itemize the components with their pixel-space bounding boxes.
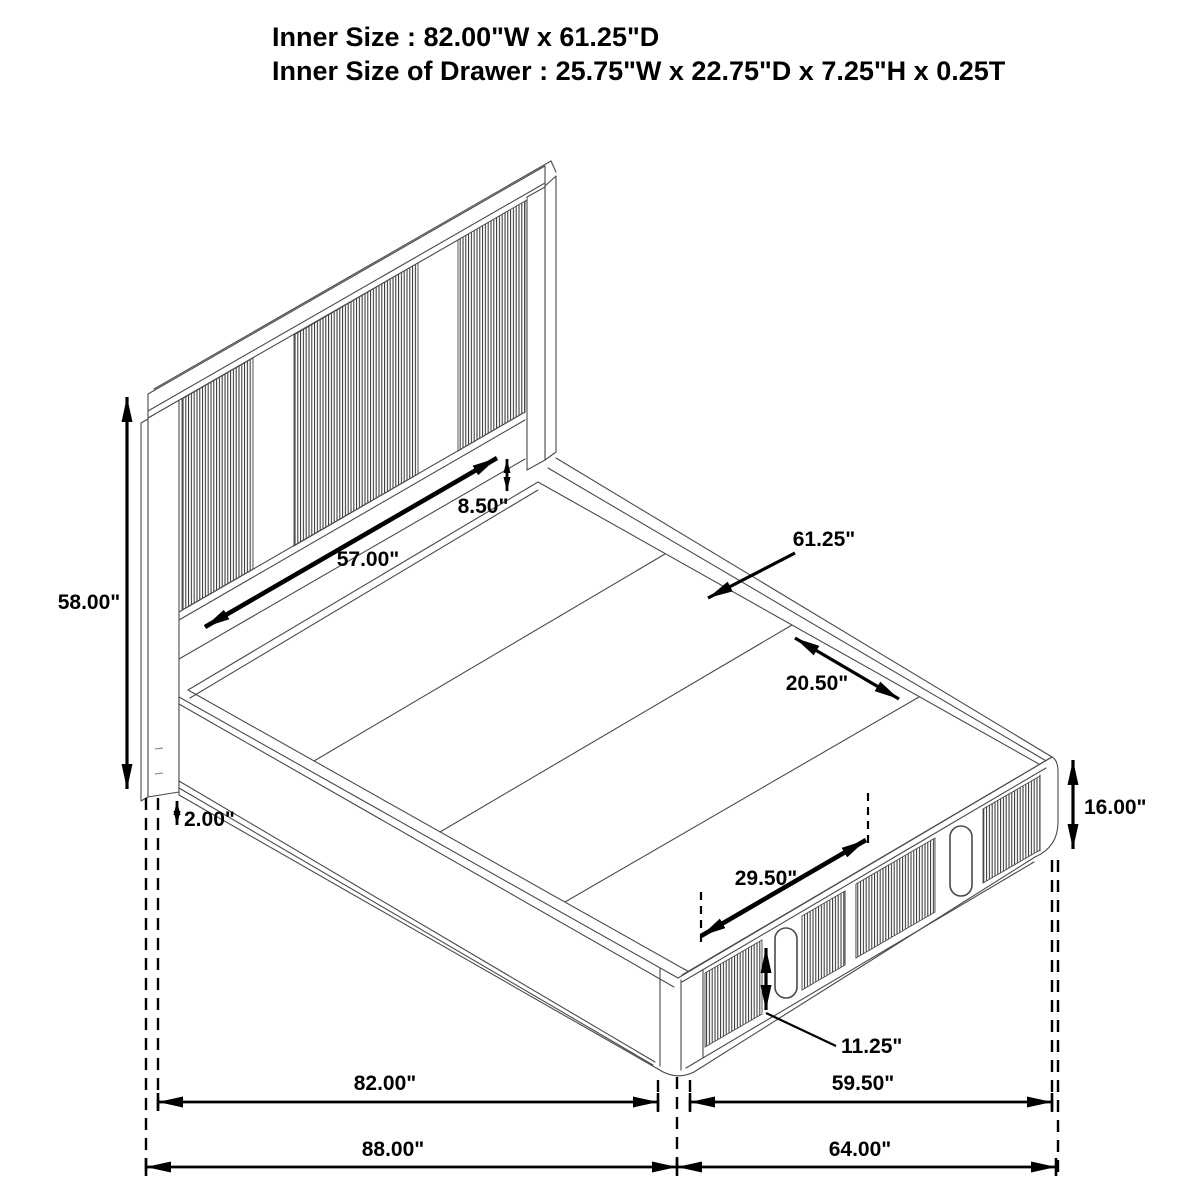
dim-overall-length: 88.00" <box>146 1138 677 1176</box>
headboard-reeded-panel-1 <box>182 358 253 610</box>
headboard-left-post-side <box>141 419 148 801</box>
dim-headboard-height-label: 58.00" <box>58 591 121 614</box>
dim-inner-length-label: 82.00" <box>354 1072 417 1095</box>
dim-drawer-rail-length-label: 59.50" <box>832 1072 895 1095</box>
headboard-left-post <box>148 400 179 797</box>
headboard-right-post <box>527 187 545 470</box>
title-line-2: Inner Size of Drawer : 25.75"W x 22.75"D… <box>272 56 1006 86</box>
headboard-right-post-side <box>545 176 556 460</box>
drawer-handle-1 <box>775 928 797 998</box>
headboard-reeded-panel-3 <box>458 201 525 451</box>
dim-overall-length-label: 88.00" <box>362 1138 425 1161</box>
dim-headboard-width-label: 57.00" <box>337 548 400 571</box>
dim-inner-length: 82.00" <box>158 1072 658 1111</box>
dim-inner-depth-label: 61.25" <box>793 528 856 551</box>
dim-drawer-width-label: 29.50" <box>735 867 798 890</box>
dim-headboard-height: 58.00" <box>58 397 127 789</box>
title-block: Inner Size : 82.00"W x 61.25"D Inner Siz… <box>272 22 1006 86</box>
bed-dimension-diagram: 58.00" 2.00" 8.50" 57.00" 61.25" 20.50" … <box>0 0 1200 1200</box>
diagram-page: 58.00" 2.00" 8.50" 57.00" 61.25" 20.50" … <box>0 0 1200 1200</box>
drawer-handle-2 <box>950 826 972 896</box>
dim-platform-height-label: 16.00" <box>1084 796 1147 819</box>
dim-overall-width: 64.00" <box>677 1138 1056 1176</box>
title-line-1: Inner Size : 82.00"W x 61.25"D <box>272 22 659 52</box>
dim-platform-height: 16.00" <box>1073 760 1147 849</box>
dim-slat-width-label: 20.50" <box>786 672 849 695</box>
dim-overall-width-label: 64.00" <box>829 1138 892 1161</box>
dim-headboard-rail-label: 8.50" <box>458 495 509 518</box>
dim-drawer-rail-length: 59.50" <box>690 1072 1052 1111</box>
dim-handle-height-label: 11.25" <box>841 1035 902 1058</box>
dim-leg-height-label: 2.00" <box>184 808 235 831</box>
